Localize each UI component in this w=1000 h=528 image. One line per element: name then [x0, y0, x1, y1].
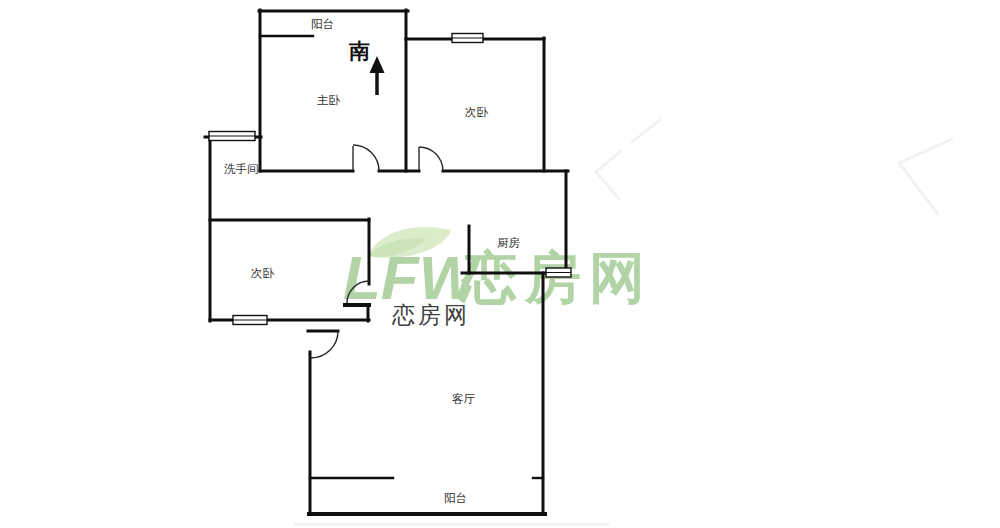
door-arc [353, 145, 379, 171]
window-icon [209, 132, 255, 141]
floor-plan-canvas: LFW 恋房网 [0, 0, 1000, 528]
faint-chevron [899, 139, 952, 214]
compass-arrow-icon [370, 56, 385, 73]
compass-south-label: 南 [348, 39, 370, 62]
door-arc [419, 147, 443, 171]
door-arc [311, 331, 338, 358]
room-label-kitchen: 厨房 [497, 237, 521, 249]
room-label-bathroom: 洗手间 [224, 163, 259, 175]
room-label-living-room: 客厅 [452, 393, 476, 405]
site-name-label: 恋房网 [391, 302, 470, 328]
window-icon [233, 316, 267, 325]
room-label-balcony-bottom: 阳台 [444, 492, 467, 504]
room-label-bedroom-right: 次卧 [465, 106, 489, 118]
floor-plan-drawing: LFW 恋房网 [0, 0, 1000, 528]
faint-chevron [596, 151, 621, 199]
compass: 南 [348, 39, 385, 95]
room-label-balcony-top: 阳台 [311, 18, 334, 30]
window-icon [546, 268, 571, 277]
room-label-master-bedroom: 主卧 [317, 94, 341, 106]
room-label-bedroom-left: 次卧 [251, 267, 275, 279]
faint-slash [632, 120, 660, 142]
window-icon [452, 34, 483, 43]
